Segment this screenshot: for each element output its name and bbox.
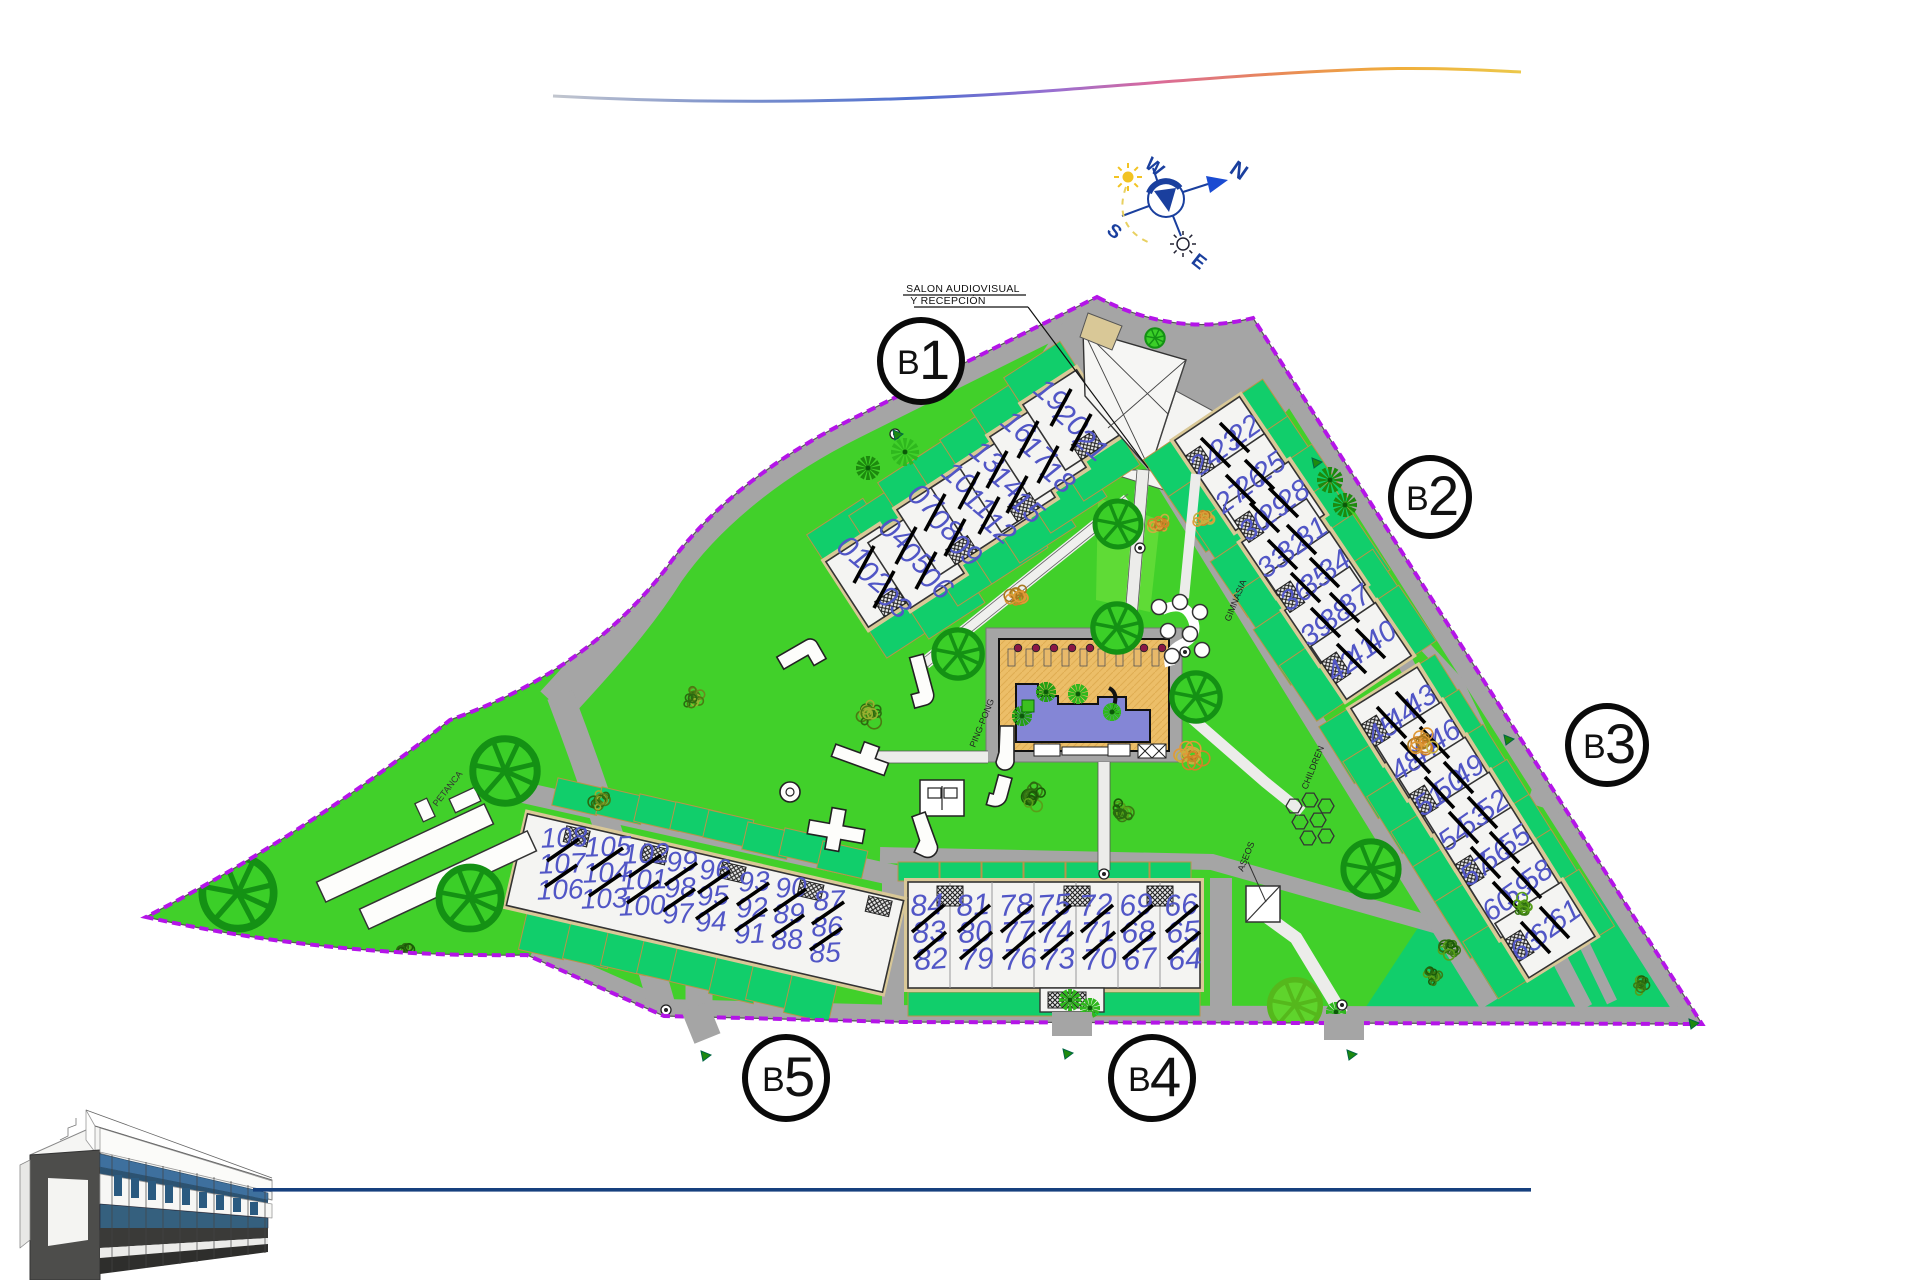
svg-text:73: 73 <box>1040 942 1076 977</box>
svg-text:1: 1 <box>919 328 950 391</box>
svg-text:82: 82 <box>913 942 949 977</box>
svg-text:Y RECEPCIÓN: Y RECEPCIÓN <box>910 294 985 307</box>
svg-text:64: 64 <box>1167 942 1203 977</box>
svg-text:4: 4 <box>1150 1045 1181 1108</box>
svg-text:B: B <box>762 1061 785 1099</box>
svg-text:5: 5 <box>784 1045 815 1108</box>
svg-text:B: B <box>897 344 920 382</box>
svg-text:67: 67 <box>1122 942 1159 977</box>
svg-text:3: 3 <box>1605 712 1636 775</box>
svg-text:B: B <box>1583 728 1606 766</box>
svg-text:B: B <box>1406 480 1429 518</box>
svg-text:2: 2 <box>1428 464 1459 527</box>
svg-text:SALON AUDIOVISUAL: SALON AUDIOVISUAL <box>906 283 1020 295</box>
svg-text:70: 70 <box>1082 942 1118 977</box>
svg-text:76: 76 <box>1002 942 1038 977</box>
svg-text:79: 79 <box>959 942 995 977</box>
svg-text:B: B <box>1128 1061 1151 1099</box>
